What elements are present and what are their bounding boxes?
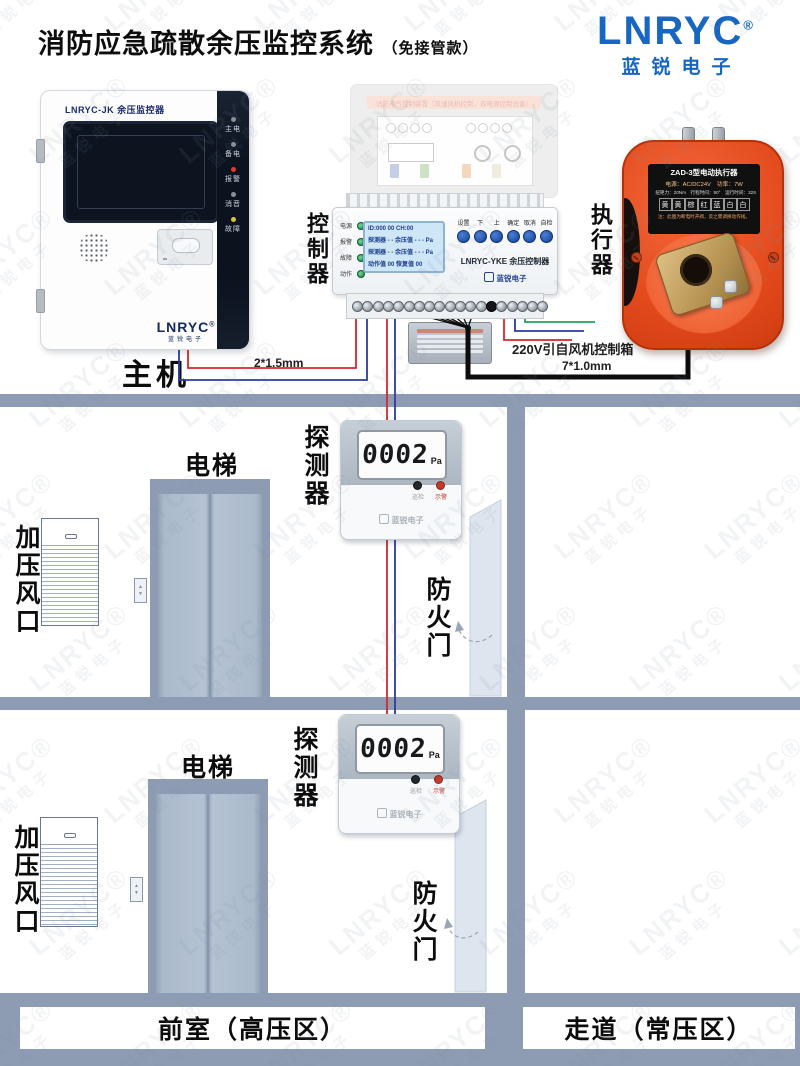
controller-button: 确定 (507, 218, 520, 243)
detector-brand: 蓝锐电子 (341, 514, 461, 526)
terminal-screw (404, 301, 415, 312)
controller-buttons: 设置下上确定取消自检 (457, 218, 553, 243)
elevator-1 (150, 479, 270, 697)
terminal-screw (507, 301, 518, 312)
wire-color-cell: 白 (724, 198, 737, 211)
cabinet-display (388, 143, 434, 162)
controller-button: 设置 (457, 218, 470, 243)
host-indicator: 备电 (225, 142, 241, 159)
lcd-row: 探测器 - - 余压值 - - - Pa (368, 247, 440, 256)
terminal-screw (496, 301, 507, 312)
actuator-screw-left (631, 252, 642, 263)
lcd-row: 探测器 - - 余压值 - - - Pa (368, 235, 440, 244)
terminal-screw (465, 301, 476, 312)
detector-brand: 蓝锐电子 (339, 808, 459, 820)
controller-button: 上 (490, 218, 503, 243)
wire-color-cell: 白 (737, 198, 750, 211)
terminal-screw (393, 301, 404, 312)
fan-control-cabinet-photo: 消防电气控制装置（双速风机控制，双电源控制设备） (350, 84, 558, 198)
controller-led-label: 电源 (340, 221, 354, 230)
elevator-doors (158, 494, 262, 697)
electric-actuator: ZAD-3型电动执行器 电源：AC/DC24V 功率：7W 扭矩力：20Nm 行… (622, 140, 784, 350)
call-up-icon: ▲ (134, 884, 139, 889)
detector-unit: Pa (429, 750, 440, 760)
wire-color-cell: 蓝 (711, 198, 724, 211)
pressure-vent-2 (40, 817, 98, 927)
host-brand-en: LNRYC (157, 319, 210, 335)
hinge-top (36, 139, 45, 163)
indicator-led (231, 142, 236, 147)
controller-button-label: 下 (477, 218, 483, 227)
detector-unit: Pa (431, 456, 442, 466)
actuator-screw-right (768, 252, 779, 263)
controller-led: 故障 (340, 253, 365, 262)
detector-alarm-led (436, 481, 445, 490)
host-brand-cn: 蓝锐电子 (131, 337, 241, 344)
actuator-wire-table: 黄黄棕红蓝白白 (651, 198, 757, 211)
actuator-spec-2: 扭矩力：20Nm 行程时间：90° 运行时间：32S (655, 189, 753, 195)
controller-button-label: 确定 (507, 218, 519, 227)
controller-led: 报警 (340, 237, 365, 246)
terminal-screw (362, 301, 373, 312)
controller-led-label: 故障 (340, 253, 354, 262)
indicator-led (231, 192, 236, 197)
actuator-shaft-hole (680, 254, 712, 286)
detector-alarm-led (434, 775, 443, 784)
controller-button-dot (540, 230, 553, 243)
cabinet-banner: 消防电气控制装置（双速风机控制，双电源控制设备） (367, 96, 541, 109)
indicator-led (231, 117, 236, 122)
actuator-title: ZAD-3型电动执行器 (651, 167, 757, 178)
controller-button-dot (490, 230, 503, 243)
vent-top-panel (42, 519, 98, 546)
terminal-screw (434, 301, 445, 312)
wire-color-cell: 棕 (685, 198, 698, 211)
indicator-led (231, 217, 236, 222)
host-brand-reg: ® (209, 321, 215, 328)
elevator-call-panel-2: ▲▼ (130, 877, 143, 902)
lcd-row: 动作值 00 恢复值 00 (368, 259, 440, 268)
fire-door-2 (455, 800, 486, 992)
actuator-spec-1: 电源：AC/DC24V 功率：7W (651, 179, 757, 188)
speaker-grille (79, 233, 109, 263)
controller-led-label: 动作 (340, 269, 354, 278)
fire-door-1 (470, 500, 501, 696)
actuator-nameplate: ZAD-3型电动执行器 电源：AC/DC24V 功率：7W 扭矩力：20Nm 行… (648, 164, 760, 234)
host-model-text: LNRYC-JK 余压监控器 (65, 103, 165, 116)
cabinet-panel (377, 116, 533, 186)
detector-value: 0002 (361, 440, 430, 470)
indicator-label: 主电 (225, 124, 241, 134)
terminal-screw (476, 301, 487, 312)
terminal-screw (373, 301, 384, 312)
pressure-controller: 电源报警故障动作 ID:000 00 CH:00探测器 - - 余压值 - - … (330, 193, 558, 320)
fan-control-nameplate (408, 322, 492, 364)
brand-square-icon (379, 514, 389, 524)
indicator-led (231, 167, 236, 172)
controller-button-dot (523, 230, 536, 243)
printer-slot (157, 229, 213, 265)
terminal-strip (346, 293, 544, 319)
indicator-label: 故障 (225, 224, 241, 234)
host-indicator: 消音 (225, 192, 241, 209)
controller-button: 下 (474, 218, 487, 243)
brand-square-icon (377, 808, 387, 818)
wire-color-cell: 红 (698, 198, 711, 211)
host-brand: LNRYC® 蓝锐电子 (131, 319, 241, 343)
vent-louvers (41, 845, 97, 926)
main-indicators: 主电备电报警消音故障 (217, 91, 249, 349)
elevator-doors (156, 794, 260, 993)
controller-leds: 电源报警故障动作 (340, 221, 365, 278)
pressure-vent-1 (41, 518, 99, 626)
lcd-row: ID:000 00 CH:00 (368, 226, 440, 232)
controller-button-label: 取消 (524, 218, 536, 227)
controller-body: 电源报警故障动作 ID:000 00 CH:00探测器 - - 余压值 - - … (332, 207, 558, 295)
host-indicator: 故障 (225, 217, 241, 234)
actuator-bolt-2 (710, 296, 723, 309)
monitor-host-unit: LNRYC-JK 余压监控器 主电备电报警消音故障 LNRYC® 蓝锐电子 (40, 90, 250, 350)
detector-run-led (411, 775, 420, 784)
elevator-call-panel-1: ▲▼ (134, 578, 147, 603)
call-up-icon: ▲ (138, 585, 143, 590)
controller-button: 自检 (540, 218, 553, 243)
pressure-detector-1: 0002 Pa 巡检 示警 蓝锐电子 (340, 420, 462, 540)
detector-value: 0002 (359, 734, 428, 764)
vent-louvers (42, 546, 98, 625)
controller-led: 电源 (340, 221, 365, 230)
indicator-label: 报警 (225, 174, 241, 184)
terminal-screw (537, 301, 548, 312)
brand-square-icon (484, 272, 494, 282)
nameplate-title-bar (417, 329, 483, 333)
wire-color-cell: 黄 (659, 198, 672, 211)
controller-button-dot (457, 230, 470, 243)
actuator-body: ZAD-3型电动执行器 电源：AC/DC24V 功率：7W 扭矩力：20Nm 行… (622, 140, 784, 350)
controller-lcd: ID:000 00 CH:00探测器 - - 余压值 - - - Pa探测器 -… (363, 221, 445, 273)
controller-button: 取消 (523, 218, 536, 243)
controller-button-label: 上 (494, 218, 500, 227)
controller-button-label: 设置 (457, 218, 469, 227)
elevator-2 (148, 779, 268, 993)
controller-button-dot (507, 230, 520, 243)
controller-brand-cn: 蓝锐电子 (497, 274, 527, 283)
actuator-bolt-1 (724, 280, 737, 293)
controller-button-label: 自检 (540, 218, 552, 227)
hinge-bottom (36, 289, 45, 313)
indicator-label: 消音 (225, 199, 241, 209)
controller-led-label: 报警 (340, 237, 354, 246)
detector-lcd: 0002 Pa (355, 724, 445, 774)
controller-model-text: LNRYC-YKE 余压控制器 (457, 256, 553, 267)
call-down-icon: ▼ (134, 891, 139, 896)
pressure-detector-2: 0002 Pa 巡检 示警 蓝锐电子 (338, 714, 460, 834)
vent-top-panel (41, 818, 97, 845)
actuator-note: 注：此图为断电时开阀，反之需调换动作线。 (655, 213, 753, 219)
detector-lcd: 0002 Pa (357, 430, 447, 480)
controller-button-dot (474, 230, 487, 243)
host-indicator: 主电 (225, 117, 241, 134)
host-indicator: 报警 (225, 167, 241, 184)
indicator-label: 备电 (225, 149, 241, 159)
call-down-icon: ▼ (138, 592, 143, 597)
poster-canvas: 消防应急疏散余压监控系统 （免接管款） LNRYC® 蓝锐电子 前室（高压区） … (0, 0, 800, 1066)
detector-run-led (413, 481, 422, 490)
controller-led: 动作 (340, 269, 365, 278)
host-screen (63, 121, 219, 223)
wire-color-cell: 黄 (672, 198, 685, 211)
controller-brand: 蓝锐电子 (457, 272, 553, 284)
